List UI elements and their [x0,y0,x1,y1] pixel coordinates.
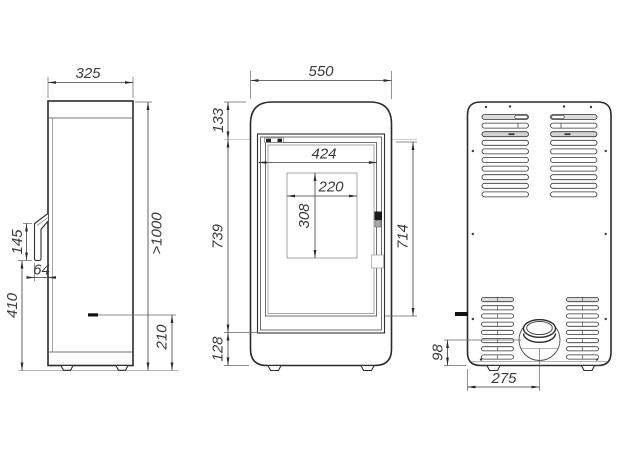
dim-label-flue-height: 98 [430,344,447,361]
back-view: 98 275 [430,102,612,391]
dim-label-intake-height: 210 [154,324,171,351]
dim-label-handle-clearance: 410 [4,292,21,318]
dim-side-width: 325 [48,65,133,98]
dim-label-plinth-height: 128 [210,336,227,362]
dim-label-handle-depth: 64 [33,262,50,279]
front-view: 550 133 739 128 424 [210,63,418,371]
dim-handle-clearance: 410 [4,261,23,371]
side-intake-mark [88,313,98,316]
dim-label-top-band: 133 [210,107,227,133]
foot [268,366,281,371]
dim-front-width: 550 [251,63,392,99]
dim-label-door-inner-height: 714 [395,224,412,249]
foot [582,366,595,371]
dim-label-window-height: 308 [296,203,313,229]
back-intake-stub [455,312,468,316]
foot [361,366,374,371]
dim-handle-height: 145 [9,224,32,261]
dim-label-front-width: 550 [308,63,334,80]
door-handle-plate [372,255,384,268]
dim-plinth-height: 128 [210,333,250,366]
dim-label-window-width: 220 [317,179,344,196]
dim-label-glass-width: 424 [311,146,336,163]
side-view: 325 145 64 410 >1000 [4,65,178,371]
foot [116,366,128,371]
dim-label-overall-height: >1000 [149,212,166,255]
foot [61,366,73,371]
dim-top-band: 133 [210,102,246,140]
door-handle [35,214,49,261]
stove-dimension-drawing: 325 145 64 410 >1000 [0,0,624,460]
dim-label-handle-height: 145 [9,229,26,255]
dim-label-flue-offset: 275 [490,370,517,387]
dim-label-door-height: 739 [210,223,227,249]
door-latch [375,212,383,221]
side-body [48,101,133,366]
dim-label-side-width: 325 [75,65,101,82]
